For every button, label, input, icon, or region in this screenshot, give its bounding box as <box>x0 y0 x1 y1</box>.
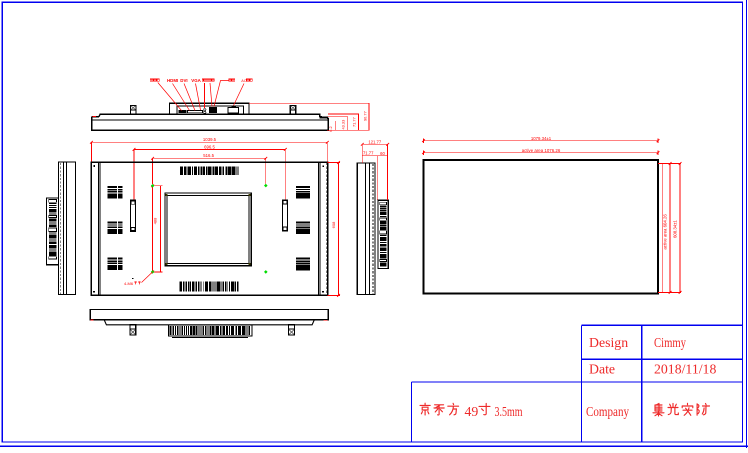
svg-text:488: 488 <box>153 217 158 224</box>
svg-text:6.2: 6.2 <box>328 126 333 131</box>
svg-text:HDMI: HDMI <box>167 78 178 83</box>
svg-text:608.34±1: 608.34±1 <box>673 219 678 238</box>
svg-text:VGA: VGA <box>191 78 201 83</box>
svg-text:516.5: 516.5 <box>203 153 214 158</box>
svg-text:1039.5: 1039.5 <box>203 137 217 142</box>
svg-text:2018/11/18: 2018/11/18 <box>654 362 716 377</box>
svg-text:121.77: 121.77 <box>368 139 381 144</box>
svg-text:Cimmy: Cimmy <box>654 335 686 350</box>
svg-text:Date: Date <box>589 362 615 377</box>
svg-text:4-M6: 4-M6 <box>124 281 134 286</box>
svg-text:3.5mm: 3.5mm <box>495 404 523 419</box>
svg-text:1079.34±1: 1079.34±1 <box>531 136 552 141</box>
svg-text:608: 608 <box>331 221 336 228</box>
svg-text:active area 604.26: active area 604.26 <box>663 214 668 250</box>
svg-text:DVI: DVI <box>180 78 187 83</box>
svg-text:60: 60 <box>380 151 385 156</box>
svg-text:71.77: 71.77 <box>352 117 357 127</box>
svg-text:90.77: 90.77 <box>363 111 368 121</box>
svg-text:active area 1076.26: active area 1076.26 <box>522 148 561 153</box>
svg-text:43.33: 43.33 <box>341 120 346 130</box>
svg-text:AC: AC <box>241 79 247 83</box>
svg-text:71.77: 71.77 <box>363 151 374 156</box>
svg-text:49: 49 <box>465 404 479 419</box>
svg-text:696.5: 696.5 <box>204 144 215 149</box>
svg-text:Company: Company <box>586 404 629 419</box>
svg-text:Design: Design <box>589 335 628 350</box>
